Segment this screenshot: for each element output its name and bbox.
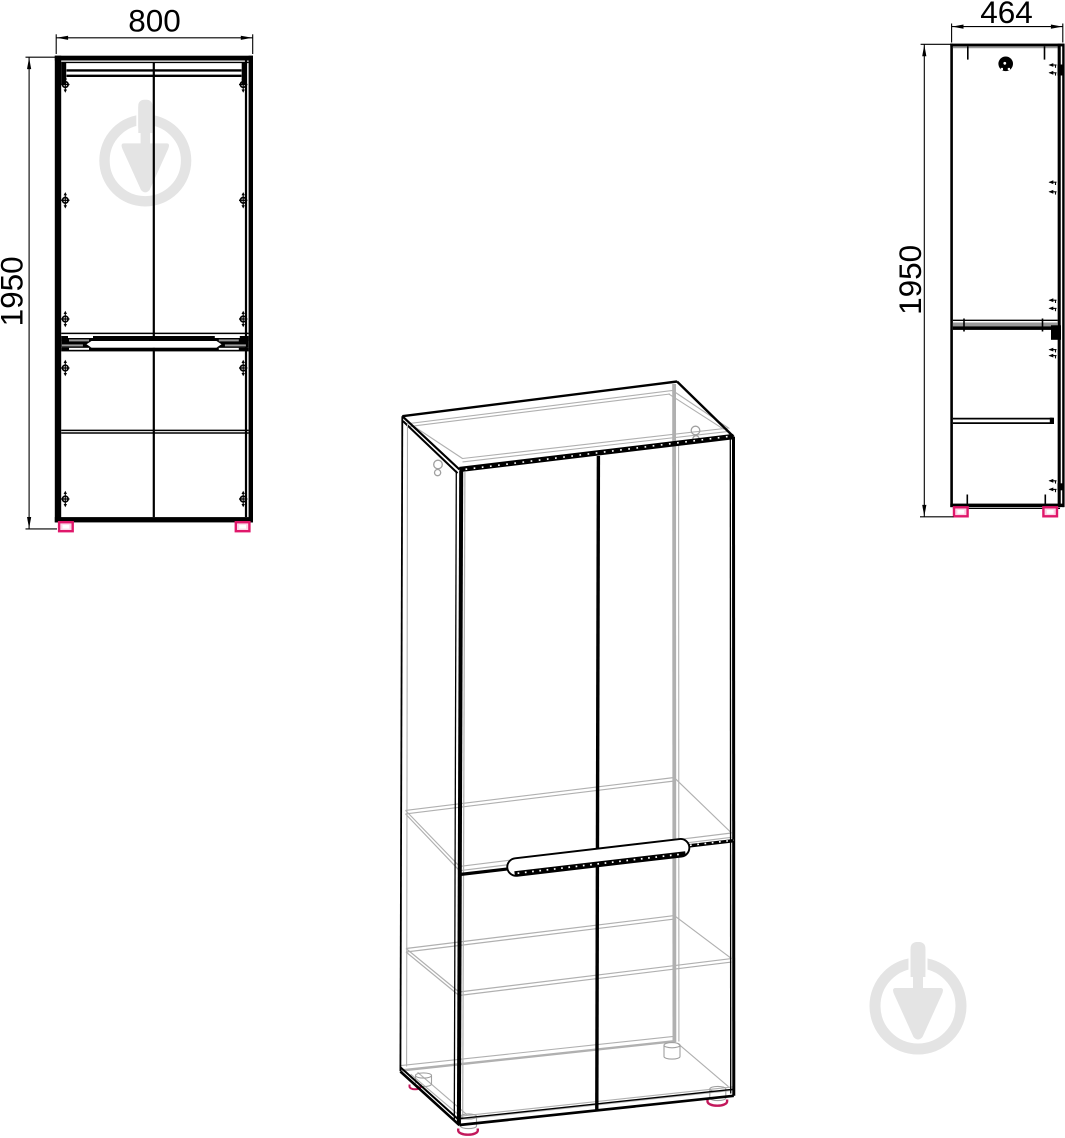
svg-text:1950: 1950 [0,256,29,326]
svg-text:800: 800 [128,2,181,38]
svg-text:1950: 1950 [892,245,928,315]
svg-text:464: 464 [980,0,1033,30]
